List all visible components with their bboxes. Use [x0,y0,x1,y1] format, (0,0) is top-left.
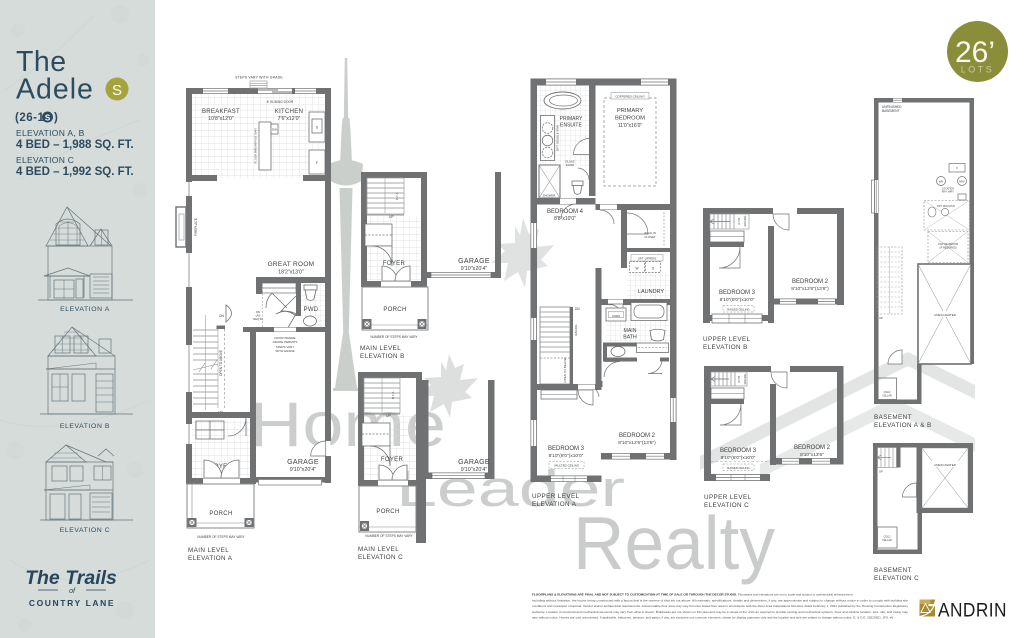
svg-text:BATH: BATH [623,335,637,341]
svg-text:GRADE PERMITS: GRADE PERMITS [273,340,298,344]
svg-text:KITCHEN: KITCHEN [275,109,303,115]
svg-text:VAULTED CEILING: VAULTED CEILING [554,464,580,468]
svg-text:ELEVATION C: ELEVATION C [704,502,749,509]
svg-text:NUMBER OF STEPS MAY VARY: NUMBER OF STEPS MAY VARY [197,535,245,539]
svg-text:FLOORPLANS & ELEVATIONS ARE FI: FLOORPLANS & ELEVATIONS ARE FINAL AND NO… [532,593,853,597]
svg-text:MAIN LEVEL: MAIN LEVEL [358,546,399,553]
svg-text:9'10"x20'4": 9'10"x20'4" [461,266,488,272]
svg-text:PORCH: PORCH [376,509,399,515]
svg-text:COFFERED CEILING: COFFERED CEILING [615,94,645,98]
svg-text:8'10"x12'6"(13'6"): 8'10"x12'6"(13'6") [791,286,829,292]
svg-text:BEDROOM 4: BEDROOM 4 [547,209,584,215]
svg-text:LINEN: LINEN [612,314,620,318]
svg-text:W: W [635,267,638,271]
svg-text:BASEMENT: BASEMENT [874,414,912,421]
svg-text:GARAGE: GARAGE [458,258,490,265]
svg-text:8'10"(8'0")x10'0": 8'10"(8'0")x10'0" [720,297,755,303]
svg-text:UNEXCAVATED: UNEXCAVATED [934,313,957,317]
svg-text:BEDROOM 2: BEDROOM 2 [794,445,831,451]
svg-text:9'10"x20'4": 9'10"x20'4" [290,467,317,473]
svg-text:RAISED CEILING: RAISED CEILING [727,466,749,470]
svg-text:UPPER LEVEL: UPPER LEVEL [704,494,752,501]
svg-text:MAIN LEVEL: MAIN LEVEL [188,547,229,554]
svg-text:(26-1: (26-1 [15,112,44,124]
svg-text:ELEVATION A, B: ELEVATION A, B [16,128,85,138]
svg-text:RAISED CEILING: RAISED CEILING [727,307,749,311]
svg-text:7'6"x12'0": 7'6"x12'0" [278,116,301,122]
svg-text:PORCH: PORCH [209,511,232,517]
svg-text:WH: WH [939,180,943,184]
svg-text:ELEVATION A: ELEVATION A [532,501,577,508]
svg-text:RAILING: RAILING [743,374,747,385]
svg-text:NUMBER OF STEPS MAY VARY: NUMBER OF STEPS MAY VARY [365,534,413,538]
svg-text:PRIMARY: PRIMARY [617,108,643,114]
svg-text:4 BED – 1,992 SQ. FT.: 4 BED – 1,992 SQ. FT. [16,166,134,178]
svg-text:ELEVATION B: ELEVATION B [60,423,110,430]
svg-text:ELEVATION A: ELEVATION A [188,555,233,562]
svg-text:O.T.A.: O.T.A. [395,192,399,201]
svg-text:DN: DN [219,314,224,318]
svg-text:MAIN: MAIN [624,328,637,334]
svg-text:Authority. Location of structu: Authority. Location of structural and me… [532,610,908,614]
svg-text:BASEMENT: BASEMENT [874,567,912,574]
svg-text:FIREPLACE: FIREPLACE [194,218,198,236]
svg-text:UP: UP [386,414,391,418]
svg-text:REQ'D): REQ'D) [253,317,263,321]
svg-text:8'10"x12'6"(13'6"): 8'10"x12'6"(13'6") [618,440,656,446]
svg-text:BEDROOM 2: BEDROOM 2 [792,279,829,285]
svg-text:UNEXCAVATED: UNEXCAVATED [934,463,957,467]
svg-text:COUNTRY LANE: COUNTRY LANE [29,598,115,608]
svg-text:8'8"x10'0": 8'8"x10'0" [554,216,576,222]
svg-text:UPPER LEVEL: UPPER LEVEL [703,336,751,343]
svg-text:ELEVATION B: ELEVATION B [360,353,405,360]
svg-text:DOOR: DOOR [566,163,574,167]
svg-text:OPT. ROUGH-IN: OPT. ROUGH-IN [937,205,955,208]
svg-text:GARAGE: GARAGE [287,459,319,466]
svg-text:ELEVATION C: ELEVATION C [358,554,403,561]
svg-text:Realty: Realty [573,501,775,585]
svg-text:6' SLIDING DOOR: 6' SLIDING DOOR [267,100,294,104]
svg-text:10'8"x12'0": 10'8"x12'0" [208,116,234,122]
svg-text:FOYER: FOYER [383,261,406,267]
svg-text:BEDROOM 3: BEDROOM 3 [720,448,757,454]
svg-text:FLUSH BREAKFAST BAR: FLUSH BREAKFAST BAR [254,128,258,164]
svg-text:OPT. UPPERS: OPT. UPPERS [638,256,657,260]
svg-text:OPT. DOUBLE SINK: OPT. DOUBLE SINK [556,125,560,151]
svg-text:MAIN LEVEL: MAIN LEVEL [360,345,401,352]
svg-text:MAY VARY: MAY VARY [942,191,954,194]
svg-text:FOYER: FOYER [381,457,404,463]
svg-text:S: S [45,114,51,123]
svg-text:BEDROOM 3: BEDROOM 3 [548,446,585,452]
svg-text:8'10"(8'0")x10'0": 8'10"(8'0")x10'0" [721,455,756,461]
svg-text:The Trails: The Trails [25,567,117,589]
svg-text:CELLAR: CELLAR [882,539,892,542]
svg-text:Adele: Adele [16,74,94,106]
svg-text:F: F [316,161,318,165]
svg-text:including without limitation,: including without limitation, the house … [532,598,908,602]
svg-text:S: S [112,82,122,99]
svg-text:GARAGE: GARAGE [458,459,490,466]
svg-text:ANDRIN: ANDRIN [938,601,1007,622]
svg-text:UP: UP [879,470,883,474]
svg-text:8'10"(8'0")x10'0": 8'10"(8'0")x10'0" [549,453,584,459]
svg-text:ELEVATION C: ELEVATION C [60,527,111,534]
svg-text:conditions and municipal, stru: conditions and municipal, structural, Ve… [532,604,908,608]
svg-text:CLOSET: CLOSET [644,235,655,239]
svg-text:9'10"x20'4": 9'10"x20'4" [461,467,488,473]
svg-text:LAUNDRY: LAUNDRY [638,289,665,295]
svg-text:ELEVATION C: ELEVATION C [16,155,74,165]
svg-text:GREAT ROOM: GREAT ROOM [268,261,315,268]
svg-text:BEDROOM: BEDROOM [615,116,645,122]
svg-text:ELEVATION B: ELEVATION B [703,344,748,351]
svg-text:UPPER LEVEL: UPPER LEVEL [532,493,580,500]
svg-text:O.T.A.: O.T.A. [391,391,395,400]
svg-text:UP: UP [879,316,883,320]
svg-text:BEDROOM 2: BEDROOM 2 [619,433,656,439]
svg-text:PORCH: PORCH [383,307,406,313]
svg-text:CELLAR: CELLAR [882,394,892,397]
svg-text:DN: DN [575,307,580,311]
svg-text:ENSUITE: ENSUITE [560,123,582,129]
svg-text:SHOWER: SHOWER [543,194,556,198]
svg-text:8'10"x13'6": 8'10"x13'6" [800,452,824,458]
svg-text:RAILING: RAILING [574,324,578,335]
svg-text:LOTS: LOTS [961,65,995,75]
svg-text:NUMBER OF STEPS MAY VARY: NUMBER OF STEPS MAY VARY [370,335,418,339]
svg-text:RAILING: RAILING [743,216,747,227]
svg-text:O.T.B.: O.T.B. [737,217,741,225]
svg-text:4 BED – 1,988 SQ. FT.: 4 BED – 1,988 SQ. FT. [16,139,134,151]
svg-text:18'2"x13'0": 18'2"x13'0" [278,270,304,276]
svg-text:ELEVATION C: ELEVATION C [874,575,919,582]
svg-text:(IF REQUIRED): (IF REQUIRED) [940,246,957,249]
svg-text:DW: DW [272,128,277,132]
svg-text:PWD: PWD [304,307,319,313]
svg-text:vary without notice. Homes are: vary without notice. Homes are sold unfu… [532,616,894,620]
svg-text:PRIMARY: PRIMARY [560,116,583,122]
svg-text:O.T.B.: O.T.B. [737,375,741,383]
svg-text:BASEMENT: BASEMENT [882,109,900,113]
svg-text:UP: UP [389,215,394,219]
svg-text:WITH GRADE: WITH GRADE [275,349,294,353]
svg-text:): ) [54,112,58,124]
svg-text:HRV: HRV [959,180,965,184]
svg-text:ELEVATION A & B: ELEVATION A & B [874,422,932,429]
svg-text:OPEN TO ABOVE: OPEN TO ABOVE [219,350,223,376]
svg-text:ELEVATION A: ELEVATION A [60,306,110,313]
svg-text:BEDROOM 3: BEDROOM 3 [719,290,756,296]
svg-text:STEPS VARY WITH GRADE: STEPS VARY WITH GRADE [235,76,283,80]
svg-text:11'0"x16'0": 11'0"x16'0" [618,123,642,129]
svg-text:OPEN TO BELOW: OPEN TO BELOW [563,357,567,382]
svg-text:BREAKFAST: BREAKFAST [202,109,240,115]
